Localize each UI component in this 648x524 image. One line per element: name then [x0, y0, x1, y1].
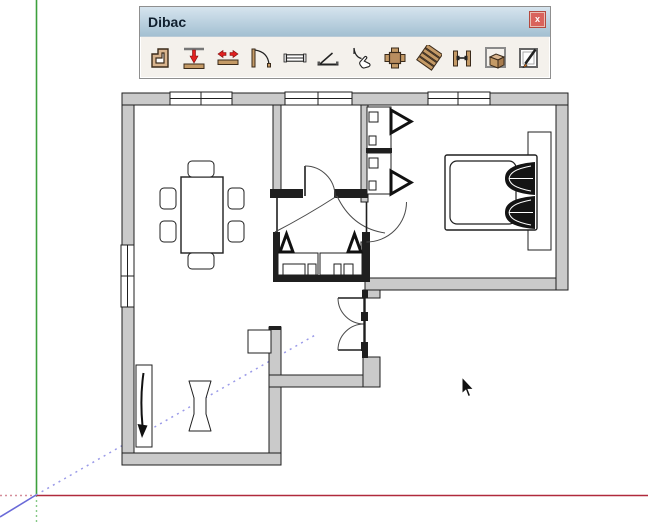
wardrobe — [366, 107, 411, 194]
door-swing-icon — [248, 45, 274, 71]
floor-plan — [121, 92, 568, 465]
tool-convert-2d-3d-button[interactable] — [513, 42, 547, 74]
pen-document-icon — [516, 45, 542, 71]
sketchup-viewport: Dibac x — [0, 0, 648, 524]
open-door-symbol — [348, 234, 361, 252]
stairs-icon — [416, 45, 442, 71]
tool-wall-junction-button[interactable] — [446, 42, 480, 74]
open-door-symbol — [280, 234, 293, 252]
close-button[interactable]: x — [530, 12, 545, 27]
blue-axis — [0, 495, 36, 517]
tool-casement-window-button[interactable] — [312, 42, 346, 74]
tool-draw-walls-button[interactable] — [144, 42, 178, 74]
wall-joint-icon — [449, 45, 475, 71]
bathroom-cabinets — [278, 234, 362, 275]
tool-stairs-button[interactable] — [412, 42, 446, 74]
tool-wall-offset-button[interactable] — [211, 42, 245, 74]
box-3d-icon — [483, 45, 509, 71]
tool-interactive-door-button[interactable] — [345, 42, 379, 74]
wall-corner-icon — [148, 45, 174, 71]
double-bed — [445, 132, 551, 250]
tool-windows-button[interactable] — [278, 42, 312, 74]
mouse-cursor — [462, 377, 474, 397]
wall-stretch-arrows-icon — [215, 45, 241, 71]
toolbar-title-bar[interactable]: Dibac x — [140, 7, 550, 37]
toolbar-title: Dibac — [148, 14, 186, 30]
tool-doors-button[interactable] — [245, 42, 279, 74]
open-door-symbol — [391, 110, 411, 133]
window-open-icon — [315, 45, 341, 71]
stool — [248, 330, 271, 353]
wall-push-down-icon — [181, 45, 207, 71]
lounge-furniture — [136, 330, 271, 447]
tool-wall-height-button[interactable] — [178, 42, 212, 74]
tool-furniture-button[interactable] — [379, 42, 413, 74]
side-unit — [189, 381, 211, 431]
open-door-symbol — [391, 171, 411, 194]
window-plan-icon — [282, 45, 308, 71]
dining-set — [160, 161, 244, 269]
toolbar-buttons — [140, 37, 550, 78]
tool-generate-3d-button[interactable] — [479, 42, 513, 74]
dibac-toolbar: Dibac x — [139, 6, 551, 79]
hand-door-icon — [349, 45, 375, 71]
table-chairs-icon — [382, 45, 408, 71]
